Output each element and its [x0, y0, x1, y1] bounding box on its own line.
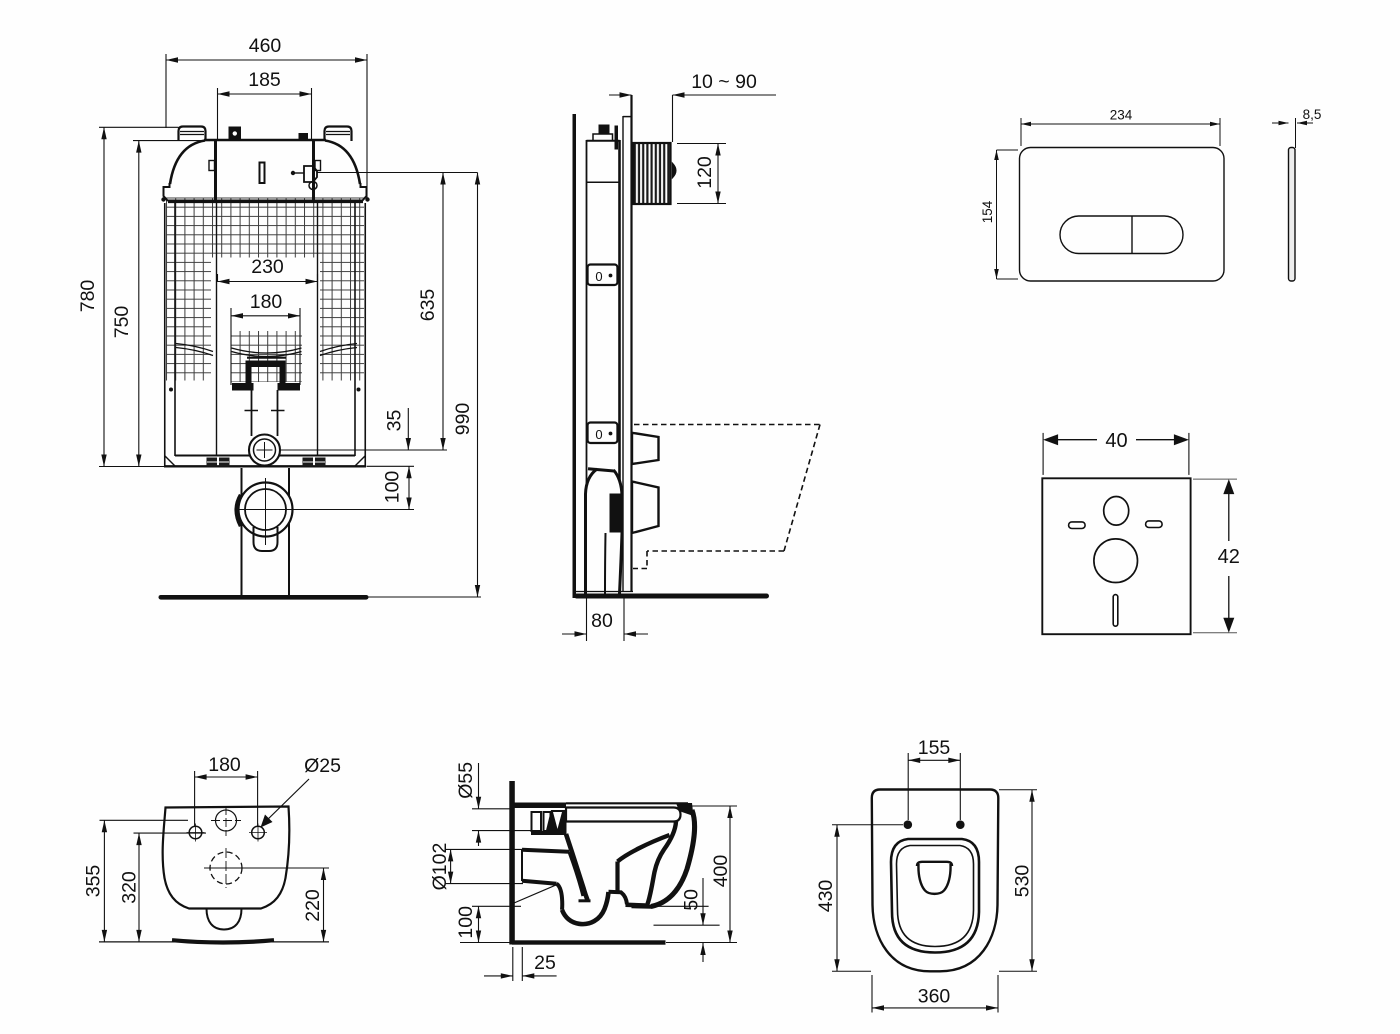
svg-text:180: 180 — [250, 291, 283, 313]
svg-text:155: 155 — [918, 737, 951, 759]
svg-text:460: 460 — [249, 35, 282, 57]
svg-text:0: 0 — [595, 427, 602, 442]
svg-text:750: 750 — [111, 306, 133, 339]
svg-text:780: 780 — [77, 280, 99, 313]
svg-text:25: 25 — [534, 952, 556, 974]
svg-text:80: 80 — [591, 610, 613, 632]
svg-text:220: 220 — [302, 889, 324, 922]
svg-text:10 ~ 90: 10 ~ 90 — [691, 71, 757, 93]
svg-text:35: 35 — [384, 410, 406, 432]
svg-text:Ø55: Ø55 — [455, 762, 477, 799]
svg-text:360: 360 — [918, 986, 951, 1008]
svg-text:8,5: 8,5 — [1303, 107, 1322, 122]
svg-text:234: 234 — [1110, 108, 1133, 123]
svg-text:400: 400 — [710, 855, 732, 888]
svg-text:320: 320 — [119, 871, 141, 904]
svg-text:Ø25: Ø25 — [304, 755, 341, 777]
svg-text:42: 42 — [1218, 546, 1240, 568]
svg-text:154: 154 — [980, 200, 995, 223]
svg-text:180: 180 — [208, 754, 241, 776]
svg-text:530: 530 — [1012, 865, 1034, 898]
svg-text:230: 230 — [251, 256, 284, 278]
svg-text:50: 50 — [681, 889, 703, 911]
svg-text:355: 355 — [83, 865, 105, 898]
svg-text:100: 100 — [382, 471, 404, 504]
svg-text:120: 120 — [694, 156, 716, 189]
svg-text:0: 0 — [595, 269, 602, 284]
svg-text:430: 430 — [815, 880, 837, 913]
svg-text:635: 635 — [417, 289, 439, 322]
svg-text:Ø102: Ø102 — [429, 843, 451, 891]
svg-text:100: 100 — [455, 906, 477, 939]
svg-text:990: 990 — [452, 403, 474, 436]
svg-text:40: 40 — [1105, 430, 1127, 452]
svg-text:185: 185 — [248, 69, 281, 91]
